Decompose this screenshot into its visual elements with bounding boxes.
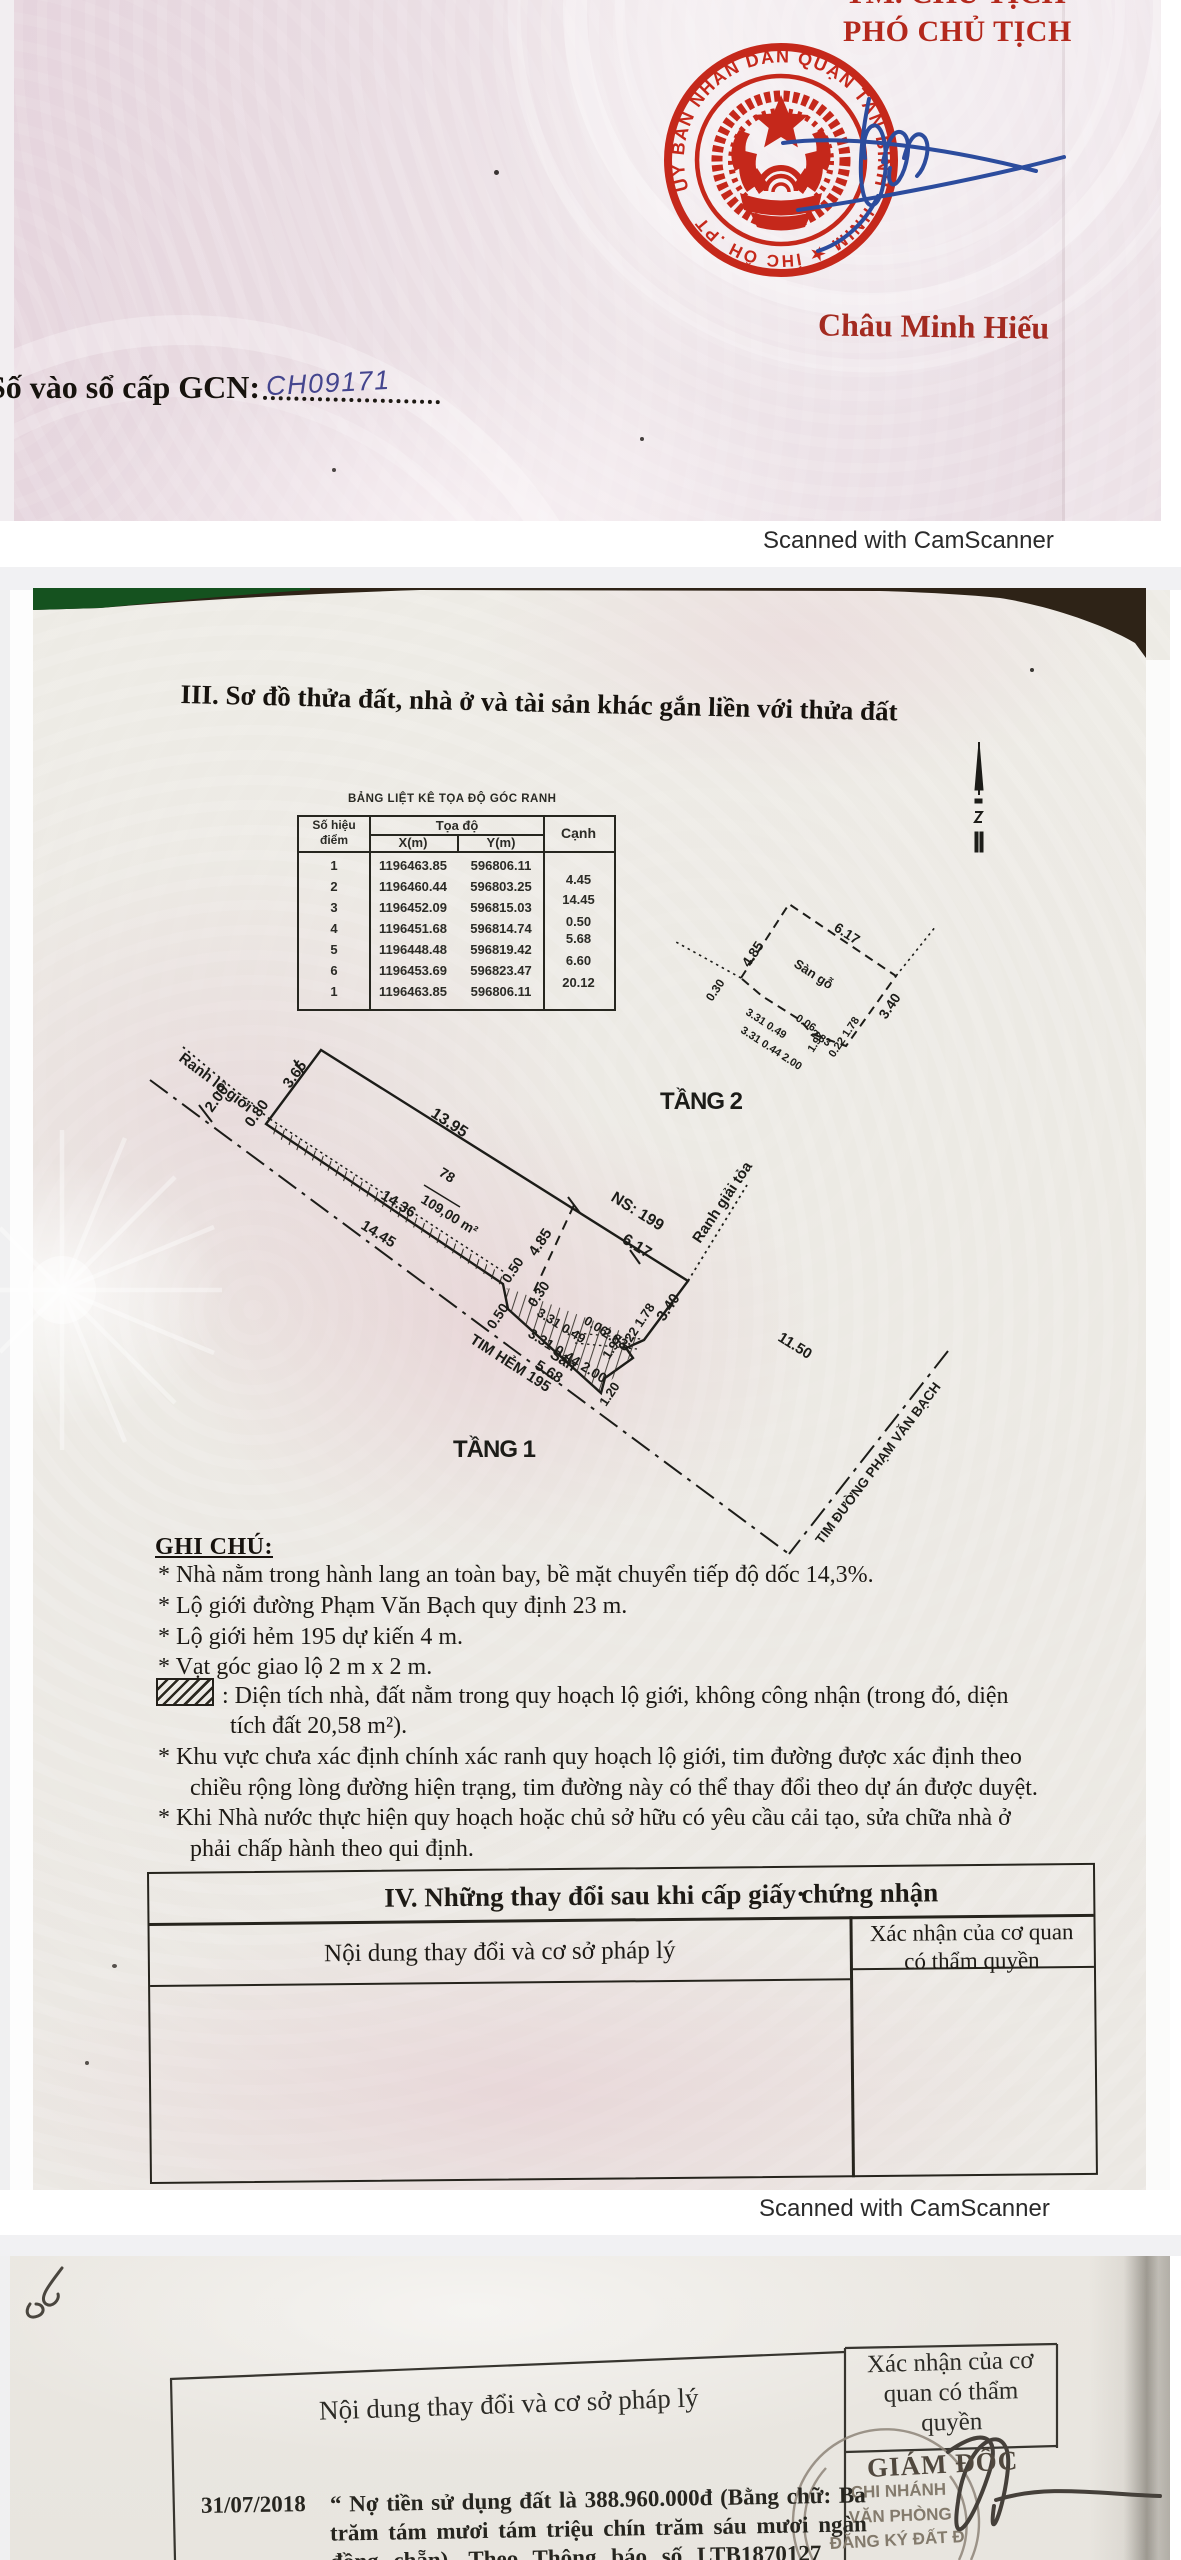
svg-text:11.50: 11.50 (775, 1329, 815, 1363)
svg-text:3.40: 3.40 (653, 1291, 683, 1325)
svg-text:3.40: 3.40 (875, 990, 904, 1022)
svg-text:13.95: 13.95 (428, 1105, 471, 1141)
svg-text:14.45: 14.45 (358, 1217, 399, 1251)
svg-text:TẦNG 1: TẦNG 1 (453, 1435, 536, 1463)
svg-text:Ranh giải tỏa: Ranh giải tỏa (689, 1158, 756, 1246)
svg-text:3.65: 3.65 (279, 1058, 310, 1092)
svg-text:NS: 199: NS: 199 (608, 1189, 667, 1235)
svg-text:Sàn gỗ: Sàn gỗ (791, 956, 836, 992)
svg-text:4.85: 4.85 (738, 938, 767, 970)
svg-text:TIM ĐƯỜNG PHẠM VĂN BẠCH: TIM ĐƯỜNG PHẠM VĂN BẠCH (812, 1379, 943, 1546)
svg-text:TẦNG 2: TẦNG 2 (660, 1087, 743, 1115)
svg-text:78: 78 (436, 1164, 458, 1186)
svg-text:0.30: 0.30 (703, 976, 728, 1003)
